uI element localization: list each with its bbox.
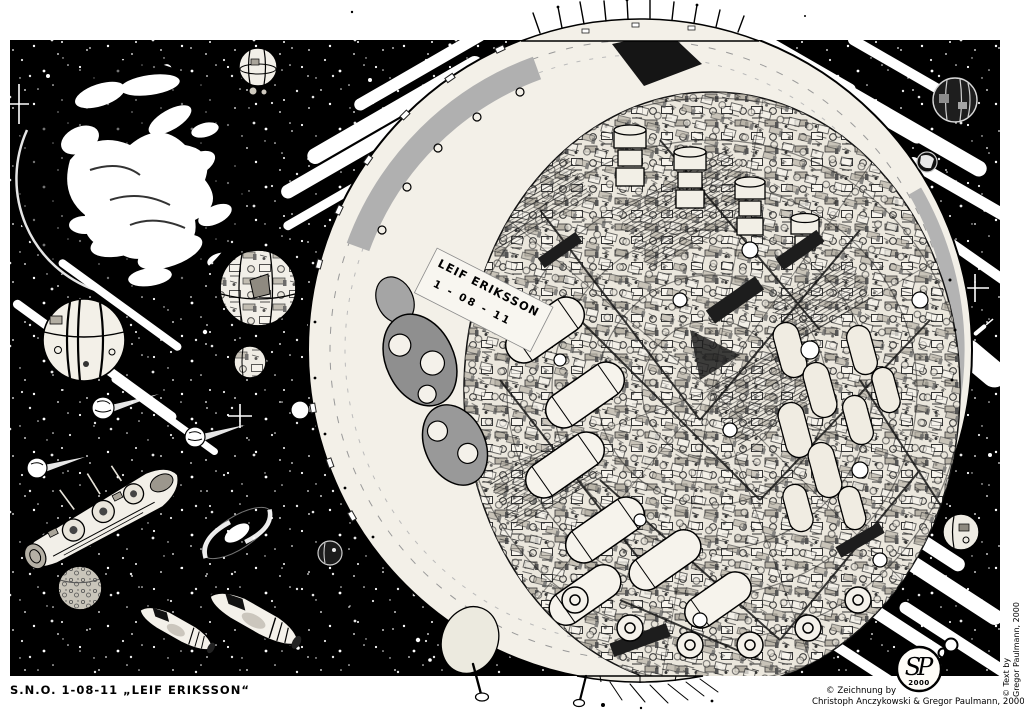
text-credit-names: Gregor Paulmann, 2000 [1012, 602, 1021, 697]
illustration-canvas: LEIF ERIKSSON 1 - 08 - 11 [0, 0, 1024, 714]
sphere-ship-dark-small [318, 541, 342, 565]
strut-foot [574, 700, 585, 707]
text-credit-prefix: © Text by [1002, 658, 1011, 697]
sphere-ship-banded [43, 299, 125, 381]
cutaway-poster: LEIF ERIKSSON 1 - 08 - 11 [0, 0, 1024, 714]
sphere-ship-small [234, 346, 266, 378]
illustration-frame: LEIF ERIKSSON 1 - 08 - 11 [4, 12, 1024, 714]
sphere-ship-tiny [917, 152, 937, 172]
sphere-ship-dark-banded [933, 78, 977, 122]
strut-foot [476, 693, 489, 701]
sphere-ship-cutaway-small [220, 250, 296, 326]
title-caption: S.N.O. 1-08-11 „LEIF ERIKSSON“ [10, 683, 250, 697]
sphere-ship-right-low [943, 514, 979, 550]
badge-year-text: 2000 [908, 679, 929, 687]
drawing-credit-prefix: © Zeichnung by [826, 686, 896, 696]
moon-sphere [58, 566, 102, 610]
drawing-credit-names: Christoph Anczykowski & Gregor Paulmann,… [812, 697, 1024, 707]
